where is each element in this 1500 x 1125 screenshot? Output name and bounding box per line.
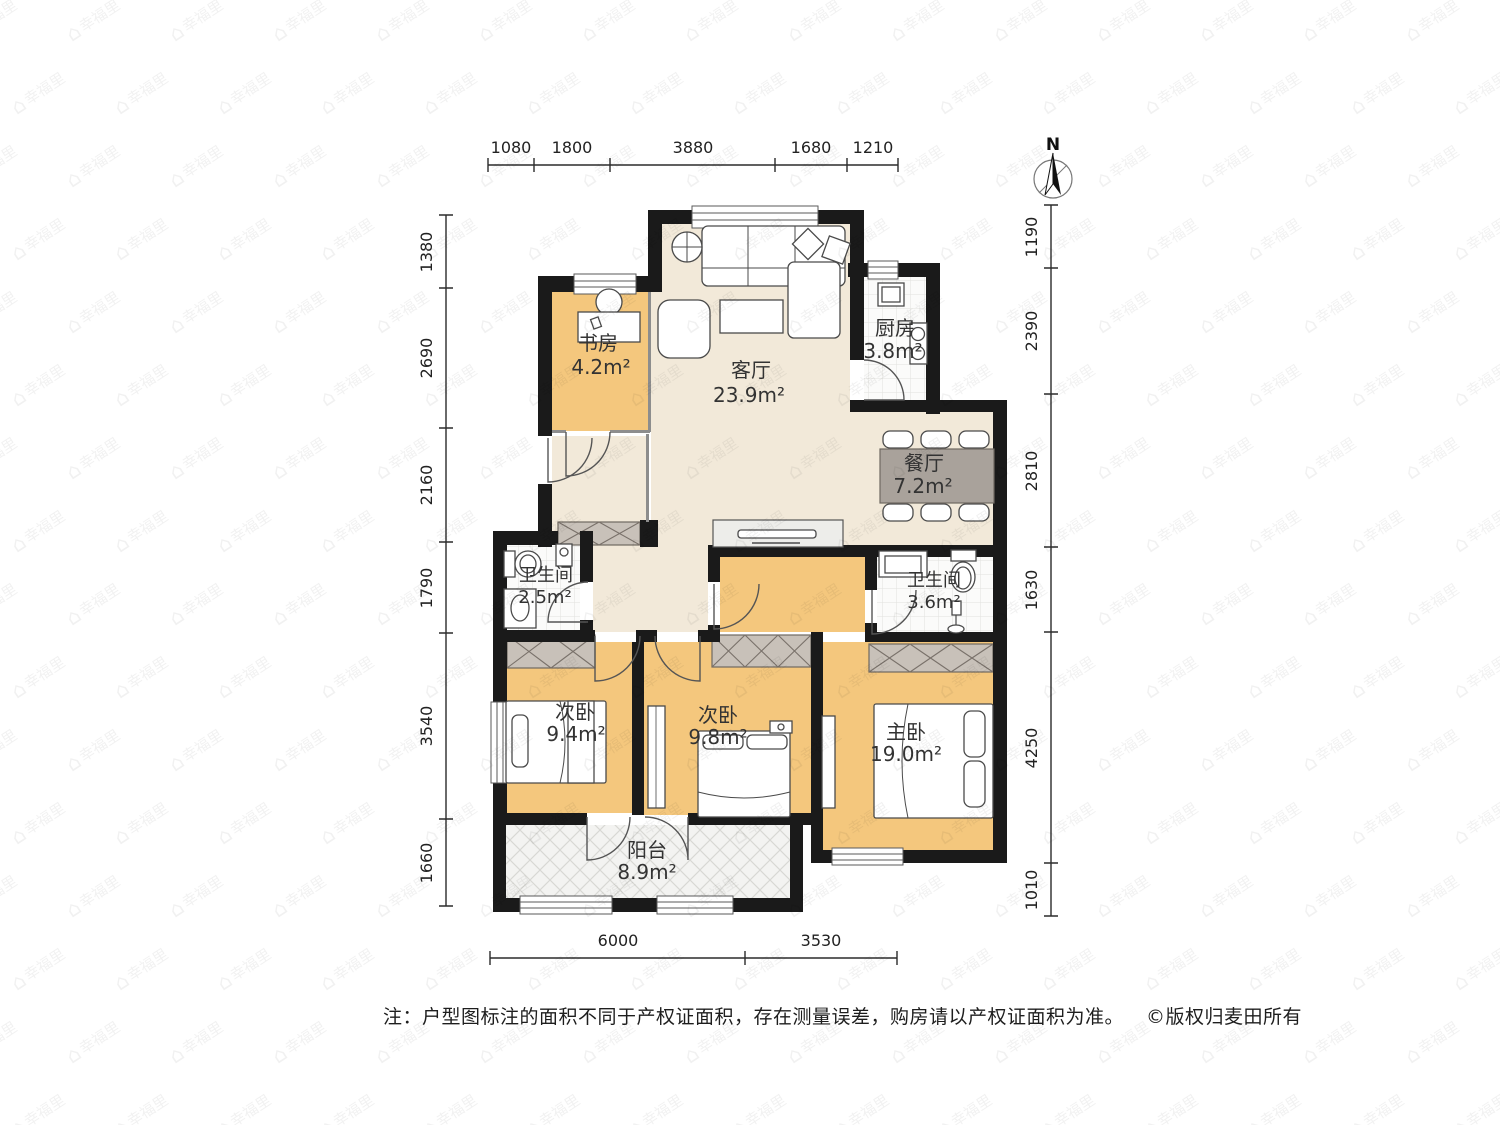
room-area-bedroom1: 9.4m² [546,722,605,746]
room-area-balcony: 8.9m² [617,860,676,884]
room-name-bath1: 卫生间 [519,565,573,586]
room-area-dining: 7.2m² [893,474,952,498]
master-window [832,848,903,865]
dimension-label: 2160 [417,465,436,506]
north-label: N [1046,135,1060,155]
dimension-label: 1210 [853,138,894,157]
dimension-label: 4250 [1022,728,1041,769]
dimension-label: 3880 [673,138,714,157]
dimension-label: 3540 [417,706,436,747]
tv-cabinet [713,520,843,547]
dimension-label: 1680 [791,138,832,157]
dimension-right: 1190 2390 2810 1630 4250 1010 [1022,205,1058,916]
dimension-label: 1630 [1022,570,1041,611]
floor-plan-canvas: 书房 4.2m² 客厅 23.9m² 厨房 3.8m² 餐厅 7.2m² 卫生间… [0,0,1500,1125]
compass-needle-icon [1053,153,1061,195]
armchair [658,300,710,358]
floor-lamp [672,232,702,262]
dimension-bottom: 6000 3530 [490,931,897,965]
dimension-label: 1660 [417,843,436,884]
north-indicator: N [1034,135,1072,198]
dimension-label: 6000 [598,931,639,950]
living-window [692,206,818,228]
dimension-label: 3530 [801,931,842,950]
dimension-label: 1010 [1022,870,1041,911]
dimension-label: 1190 [1022,217,1041,258]
room-name-bedroom2: 次卧 [698,703,738,727]
room-name-balcony: 阳台 [627,838,667,862]
dimension-label: 1790 [417,568,436,609]
dimension-label: 1800 [552,138,593,157]
room-name-bath2: 卫生间 [907,570,961,591]
room-name-study: 书房 [578,331,618,355]
dimension-left: 1380 2690 2160 1790 3540 1660 [417,215,453,906]
balcony-window-right [657,896,733,914]
balcony-window-left [520,896,612,914]
room-area-kitchen: 3.8m² [863,339,922,363]
room-area-bedroom2: 9.8m² [688,725,747,749]
footnote: 注：户型图标注的面积不同于产权证面积，存在测量误差，购房请以产权证面积为准。©版… [383,1002,1302,1029]
room-name-kitchen: 厨房 [875,316,915,340]
coffee-table [720,300,783,333]
room-area-bath1: 2.5m² [518,587,571,608]
room-area-study: 4.2m² [571,355,630,379]
room-name-bedroom1: 次卧 [555,700,595,724]
room-area-living: 23.9m² [713,383,785,407]
room-name-dining: 餐厅 [904,451,944,475]
room-name-master: 主卧 [886,720,926,744]
dimension-label: 1080 [491,138,532,157]
dimension-label: 2690 [417,338,436,379]
kitchen-window [868,261,898,279]
dimension-label: 2390 [1022,311,1041,352]
dimension-label: 1380 [417,232,436,273]
dimension-label: 2810 [1022,451,1041,492]
copyright-text: ©版权归麦田所有 [1146,1006,1302,1028]
dimension-top: 1080 1800 3880 1680 1210 [488,138,898,172]
room-area-master: 19.0m² [870,742,942,766]
kitchen-sink [878,283,904,306]
room-name-living: 客厅 [731,358,771,382]
room-area-bath2: 3.6m² [907,592,960,613]
disclaimer-text: 注：户型图标注的面积不同于产权证面积，存在测量误差，购房请以产权证面积为准。 [383,1006,1124,1028]
